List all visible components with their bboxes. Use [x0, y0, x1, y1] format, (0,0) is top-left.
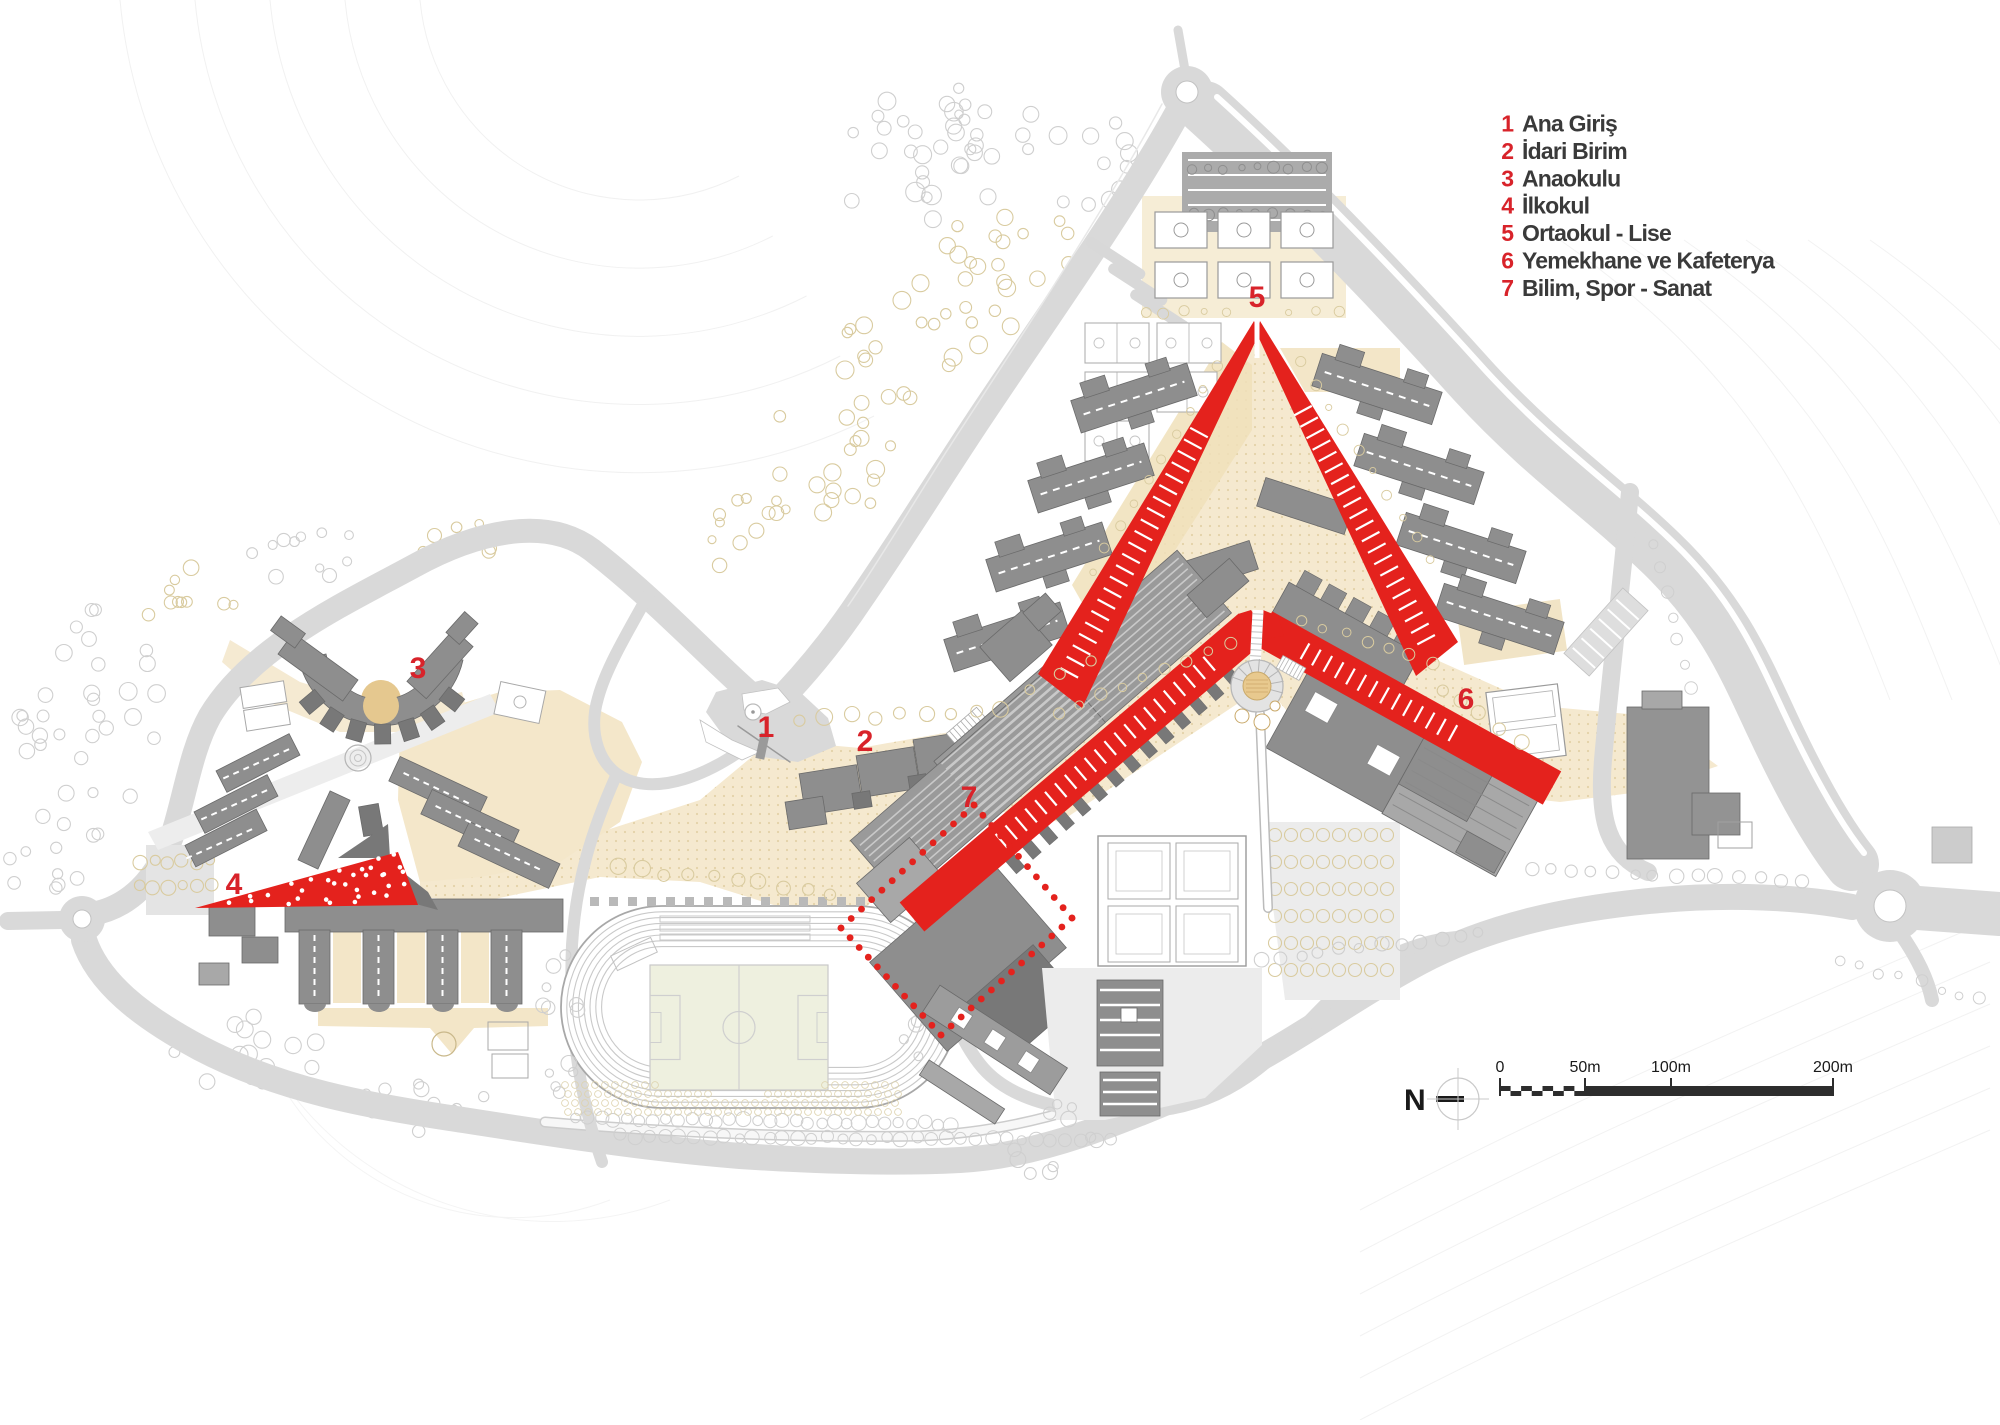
- svg-text:İdari Birim: İdari Birim: [1522, 138, 1627, 164]
- svg-text:5: 5: [1501, 220, 1514, 246]
- svg-text:50m: 50m: [1569, 1059, 1600, 1076]
- svg-text:1: 1: [1501, 111, 1514, 137]
- svg-text:Yemekhane ve Kafeterya: Yemekhane ve Kafeterya: [1522, 248, 1775, 274]
- svg-text:N: N: [1404, 1084, 1426, 1117]
- svg-text:200m: 200m: [1813, 1059, 1853, 1076]
- svg-text:1: 1: [758, 711, 775, 744]
- svg-text:6: 6: [1458, 683, 1475, 716]
- svg-text:0: 0: [1496, 1059, 1505, 1076]
- svg-text:Bilim, Spor - Sanat: Bilim, Spor - Sanat: [1522, 275, 1712, 301]
- svg-text:3: 3: [410, 652, 427, 685]
- svg-text:Ana Giriş: Ana Giriş: [1522, 111, 1617, 137]
- svg-text:3: 3: [1501, 165, 1514, 191]
- svg-text:Ortaokul - Lise: Ortaokul - Lise: [1522, 220, 1671, 246]
- svg-text:5: 5: [1249, 281, 1266, 314]
- svg-text:Anaokulu: Anaokulu: [1522, 165, 1620, 191]
- svg-text:İlkokul: İlkokul: [1522, 193, 1589, 219]
- svg-text:4: 4: [1501, 193, 1514, 219]
- svg-text:2: 2: [857, 725, 874, 758]
- svg-text:7: 7: [961, 781, 978, 814]
- svg-text:100m: 100m: [1651, 1059, 1691, 1076]
- svg-text:7: 7: [1501, 275, 1514, 301]
- svg-text:4: 4: [226, 868, 243, 901]
- svg-text:2: 2: [1501, 138, 1514, 164]
- svg-text:6: 6: [1501, 248, 1514, 274]
